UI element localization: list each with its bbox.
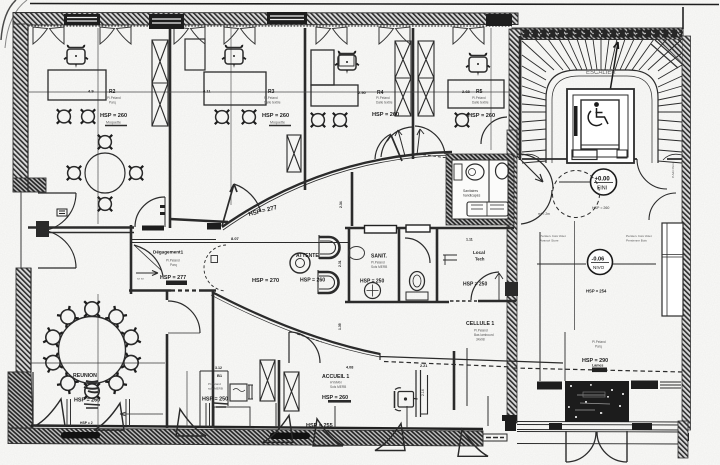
- svg-text:HSP = 270: HSP = 270: [252, 278, 279, 284]
- svg-text:HSP = 260: HSP = 260: [74, 398, 100, 404]
- svg-text:Pl.Peland: Pl.Peland: [107, 96, 121, 100]
- svg-text:Parq: Parq: [170, 263, 177, 267]
- svg-text:sols MERB: sols MERB: [208, 387, 223, 391]
- svg-text:HSP = 277: HSP = 277: [160, 275, 186, 281]
- svg-text:Persienne Bois: Persienne Bois: [626, 239, 647, 243]
- svg-text:Persien. bois Volet: Persien. bois Volet: [540, 234, 566, 238]
- svg-text:Dégagement1: Dégagement1: [153, 250, 184, 255]
- svg-text:Sols MERB: Sols MERB: [330, 385, 346, 389]
- svg-text:NIVO: NIVO: [593, 265, 605, 270]
- svg-text:Sols MERB: Sols MERB: [371, 265, 387, 269]
- svg-text:HSP = 254: HSP = 254: [586, 289, 607, 294]
- svg-text:2.31: 2.31: [338, 260, 342, 267]
- svg-text:R5: R5: [476, 89, 483, 95]
- svg-text:4.11: 4.11: [203, 89, 211, 94]
- svg-text:4.08: 4.08: [346, 366, 353, 370]
- svg-text:Local: Local: [473, 250, 485, 255]
- svg-text:HSP = 260: HSP = 260: [100, 113, 127, 119]
- svg-text:2.21: 2.21: [420, 364, 427, 368]
- svg-text:Pl.Peland: Pl.Peland: [166, 259, 180, 263]
- svg-text:Parq: Parq: [109, 101, 116, 105]
- svg-text:+0.00: +0.00: [595, 177, 611, 183]
- svg-text:ATTENTE: ATTENTE: [296, 253, 319, 259]
- svg-text:HSP = 260: HSP = 260: [300, 278, 325, 284]
- svg-text:2.14: 2.14: [421, 389, 425, 396]
- svg-text:HSP = 250: HSP = 250: [463, 282, 487, 288]
- svg-text:Moquette: Moquette: [106, 121, 121, 125]
- svg-text:P.Adri Persi: P.Adri Persi: [671, 162, 675, 178]
- svg-text:34x98: 34x98: [476, 338, 485, 342]
- svg-text:HSP = 250: HSP = 250: [360, 279, 384, 285]
- svg-text:Pl.Peland: Pl.Peland: [472, 96, 486, 100]
- svg-text:Dalle textile: Dalle textile: [264, 101, 281, 105]
- svg-text:Persien. bois Volet: Persien. bois Volet: [626, 234, 652, 238]
- svg-text:1.35: 1.35: [338, 323, 342, 330]
- svg-text:ACCUEIL 1: ACCUEIL 1: [322, 374, 349, 380]
- svg-text:Sanitaires: Sanitaires: [463, 189, 478, 193]
- svg-text:HSP = 260: HSP = 260: [372, 112, 399, 118]
- svg-text:Pl.Peland: Pl.Peland: [371, 261, 385, 265]
- svg-text:handicapés: handicapés: [463, 194, 481, 198]
- svg-text:2.34: 2.34: [339, 201, 343, 208]
- svg-text:R2: R2: [109, 89, 116, 95]
- svg-text:2.68: 2.68: [462, 89, 471, 94]
- svg-text:Pl.Peland: Pl.Peland: [208, 382, 221, 386]
- svg-text:CELLULE 1: CELLULE 1: [466, 321, 494, 327]
- svg-text:HSP = 250: HSP = 250: [202, 397, 228, 403]
- svg-text:B1: B1: [217, 373, 223, 378]
- svg-text:Lames: Lames: [592, 364, 603, 368]
- svg-text:Pl.Peland: Pl.Peland: [264, 96, 278, 100]
- svg-text:xx xx: xx xx: [137, 277, 144, 281]
- svg-text:ESCALIER: ESCALIER: [586, 70, 616, 76]
- svg-text:Pl.Peland: Pl.Peland: [376, 96, 390, 100]
- svg-text:Dalle textile: Dalle textile: [376, 101, 393, 105]
- svg-text:R3: R3: [268, 89, 275, 95]
- svg-text:Avancé Store: Avancé Store: [540, 239, 559, 243]
- svg-text:HSP = 255: HSP = 255: [306, 423, 333, 429]
- svg-text:Tech: Tech: [475, 257, 485, 262]
- svg-text:Dalle textile: Dalle textile: [472, 101, 489, 105]
- svg-text:8.07: 8.07: [231, 236, 240, 241]
- svg-text:ref = 2m: ref = 2m: [538, 212, 550, 216]
- svg-text:Bas lambourd: Bas lambourd: [474, 333, 494, 337]
- svg-text:HSP = 260: HSP = 260: [262, 113, 289, 119]
- svg-text:HSP = 260: HSP = 260: [468, 113, 495, 119]
- svg-text:SANIT.: SANIT.: [371, 254, 387, 260]
- svg-text:1.11: 1.11: [466, 238, 473, 242]
- svg-text:3.12: 3.12: [215, 366, 222, 370]
- svg-text:2.90: 2.90: [358, 90, 367, 95]
- svg-text:Parq: Parq: [595, 345, 602, 349]
- svg-text:REUNION: REUNION: [73, 373, 97, 379]
- svg-text:4.9: 4.9: [88, 89, 94, 94]
- svg-text:Pl.Peland: Pl.Peland: [592, 340, 606, 344]
- svg-text:HSP = 2: HSP = 2: [80, 421, 93, 425]
- svg-text:-0.06: -0.06: [592, 257, 605, 263]
- svg-text:Moquette: Moquette: [270, 121, 285, 125]
- svg-text:Pl.Peland: Pl.Peland: [474, 329, 488, 333]
- svg-text:HYMAN: HYMAN: [330, 381, 342, 385]
